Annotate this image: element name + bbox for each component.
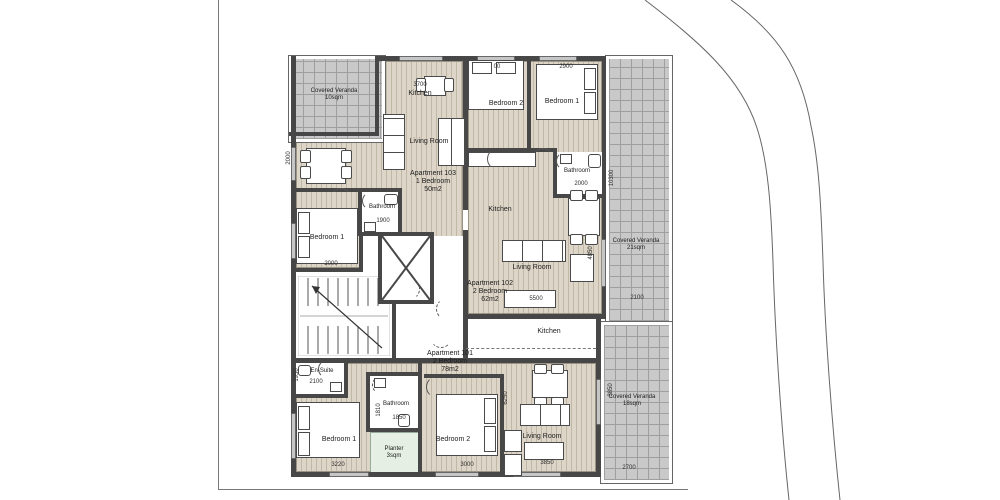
door-arc — [430, 326, 452, 348]
label-living-102: Living Room — [513, 264, 552, 272]
pillow — [484, 426, 496, 452]
window — [292, 148, 295, 180]
chair — [341, 150, 352, 163]
dim-veranda-right-height: 10300 — [609, 170, 615, 187]
armchair-101 — [504, 454, 522, 476]
label-bathroom-102: Bathroom — [564, 168, 590, 175]
door-arc — [372, 376, 390, 394]
wall — [291, 394, 348, 398]
door-arc — [398, 278, 420, 300]
chair — [534, 364, 547, 374]
toilet — [588, 154, 601, 168]
chair — [570, 190, 583, 201]
dim-kitchen-103-width: 3700 — [413, 82, 426, 88]
wall — [466, 314, 606, 319]
pillow — [298, 432, 310, 456]
dim-living-102-width: 5500 — [529, 296, 542, 302]
pillow — [472, 62, 492, 74]
label-bedroom2-101: Bedroom 2 — [436, 436, 470, 444]
armchair-101 — [504, 430, 522, 452]
coffee-table-101 — [524, 442, 564, 460]
dim-bathroom-102-width: 2000 — [574, 181, 587, 187]
dim-bathroom-101-width: 1850 — [392, 415, 405, 421]
dim-ensuite-width: 2100 — [309, 379, 322, 385]
wall — [289, 132, 379, 136]
dim-bathroom-101-height: 1810 — [376, 403, 382, 416]
wall — [375, 56, 379, 136]
dim-ensuite-height: 1950 — [294, 368, 300, 381]
window — [597, 380, 600, 424]
pillow — [584, 92, 596, 114]
sink — [364, 222, 376, 232]
wall — [344, 358, 348, 398]
label-apartment-103: Apartment 1031 Bedroom50m2 — [410, 170, 456, 194]
label-veranda-right: Covered Veranda21sqm — [613, 238, 660, 252]
dim-bedroom1-101-width: 3220 — [331, 462, 344, 468]
veranda-right — [606, 56, 672, 324]
dim-veranda-br-width: 2700 — [622, 465, 635, 471]
dim-living-101-height: 6250 — [503, 391, 509, 404]
dining-table-102 — [568, 198, 600, 236]
sofa-living-101 — [520, 404, 570, 426]
chair — [585, 190, 598, 201]
door-arc — [487, 148, 509, 170]
label-living-103: Living Room — [410, 138, 449, 146]
label-apartment-101: Apartment 1012 Bedroom78m2 — [427, 350, 473, 374]
label-apartment-102: Apartment 1022 Bedroom62m2 — [467, 280, 513, 304]
sink — [330, 382, 342, 392]
dim-bedroom1-102-width: 2900 — [559, 64, 572, 70]
label-bathroom-101: Bathroom — [383, 401, 409, 408]
dim-veranda-right-width: 2100 — [630, 295, 643, 301]
dim-bedroom2-102-width: 00 — [494, 64, 501, 70]
dim-bathroom-103-width: 1900 — [376, 218, 389, 224]
label-veranda-top-left: Covered Veranda10sqm — [311, 88, 358, 102]
window — [540, 57, 576, 60]
wall — [527, 56, 531, 150]
door-arc — [532, 148, 554, 170]
window — [400, 57, 442, 60]
pillow — [298, 212, 310, 234]
dim-bedroom2-101-width: 3000 — [460, 462, 473, 468]
dim-veranda-br-height: 3850 — [608, 383, 614, 396]
chair — [551, 364, 564, 374]
label-ensuite-101: En-Suite — [310, 368, 333, 375]
wall — [366, 372, 370, 432]
wall — [398, 188, 402, 236]
dim-bedroom1-103-width: 2000 — [324, 261, 337, 267]
wall — [418, 358, 422, 477]
window — [330, 473, 368, 476]
label-bathroom-103: Bathroom — [369, 204, 395, 211]
label-living-101: Living Room — [523, 433, 562, 441]
dim-dining-103-height: 2000 — [286, 151, 292, 164]
floor-plan-canvas: Covered Veranda10sqm Covered Veranda21sq… — [0, 0, 1000, 500]
dim-living-102-height: 4850 — [588, 246, 594, 259]
dining-table-103 — [306, 148, 346, 184]
pillow — [484, 398, 496, 424]
label-bedroom1-103: Bedroom 1 — [310, 234, 344, 242]
wall — [291, 268, 363, 272]
window — [292, 224, 295, 258]
door-arc — [330, 188, 352, 210]
wall — [366, 372, 420, 376]
dining-table-101 — [532, 370, 568, 398]
sofa-living-103 — [383, 114, 405, 170]
door-arc — [426, 376, 448, 398]
window — [292, 414, 295, 458]
pillow — [298, 236, 310, 258]
label-bedroom1-101: Bedroom 1 — [322, 436, 356, 444]
pillow — [584, 68, 596, 90]
pillow — [298, 406, 310, 430]
dim-living-101-width: 3850 — [540, 460, 553, 466]
label-kitchen-101: Kitchen — [537, 328, 560, 336]
chair — [341, 166, 352, 179]
label-bedroom2-102: Bedroom 2 — [489, 100, 523, 108]
label-veranda-bottom-right: Covered Veranda18sqm — [609, 394, 656, 408]
wall — [366, 428, 420, 432]
label-kitchen-103: Kitchen — [408, 90, 431, 98]
sofa-living-102 — [502, 240, 566, 262]
chair — [300, 166, 311, 179]
chair — [300, 150, 311, 163]
chair — [444, 78, 454, 92]
chair — [570, 234, 583, 245]
window — [602, 240, 605, 286]
door-arc — [436, 298, 458, 320]
wall — [359, 232, 363, 272]
label-planter: Planter3sqm — [384, 446, 403, 460]
chair — [585, 234, 598, 245]
window — [436, 473, 478, 476]
label-kitchen-102: Kitchen — [488, 206, 511, 214]
kitchen-101-dashed-line — [466, 348, 596, 349]
staircase — [298, 276, 390, 356]
wall — [358, 188, 362, 236]
label-bedroom1-102: Bedroom 1 — [545, 98, 579, 106]
